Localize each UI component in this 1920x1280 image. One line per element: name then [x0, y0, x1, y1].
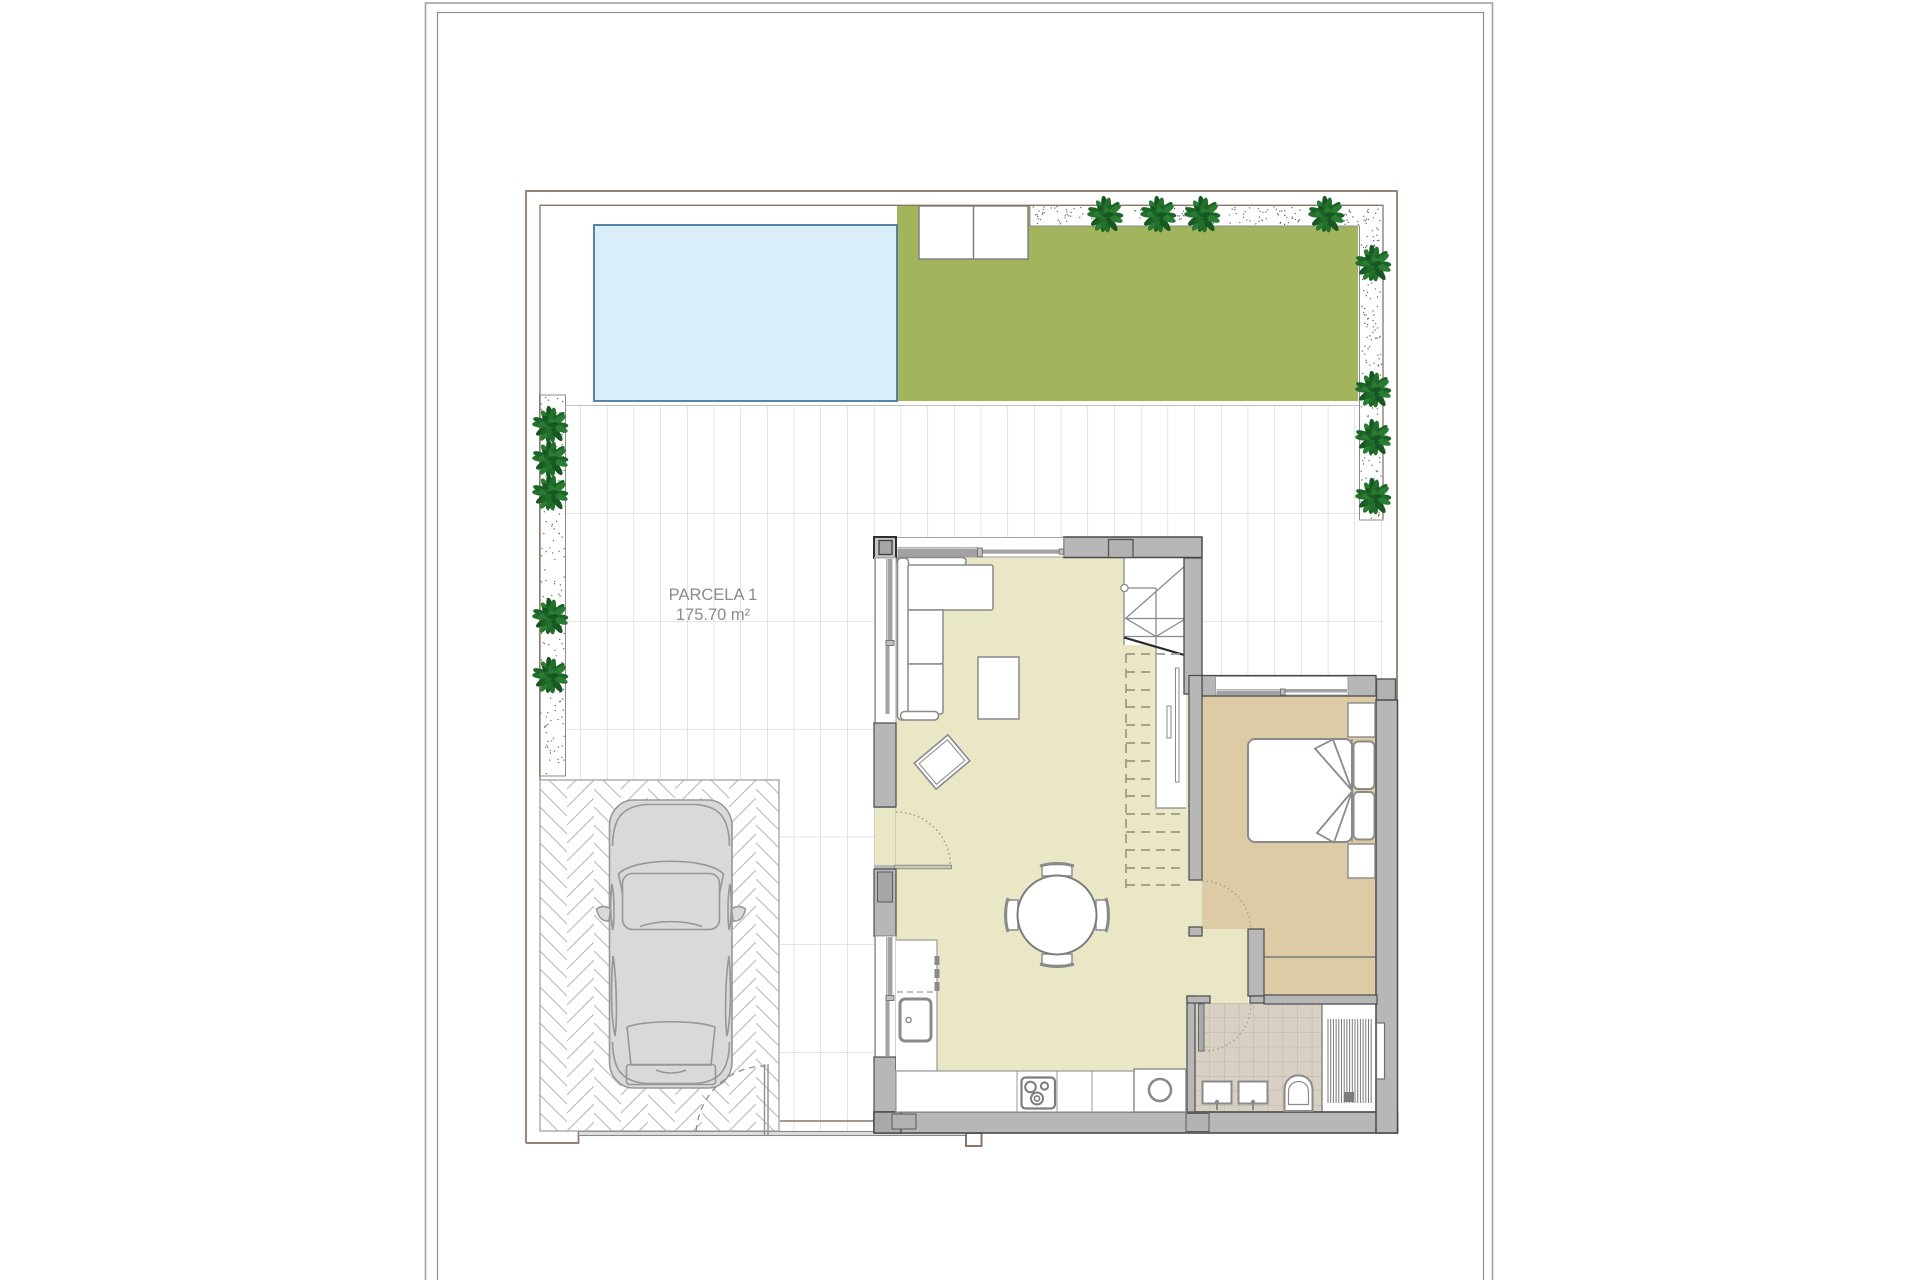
svg-text:175.70 m²: 175.70 m² [676, 606, 751, 624]
svg-text:PARCELA 1: PARCELA 1 [669, 586, 758, 604]
